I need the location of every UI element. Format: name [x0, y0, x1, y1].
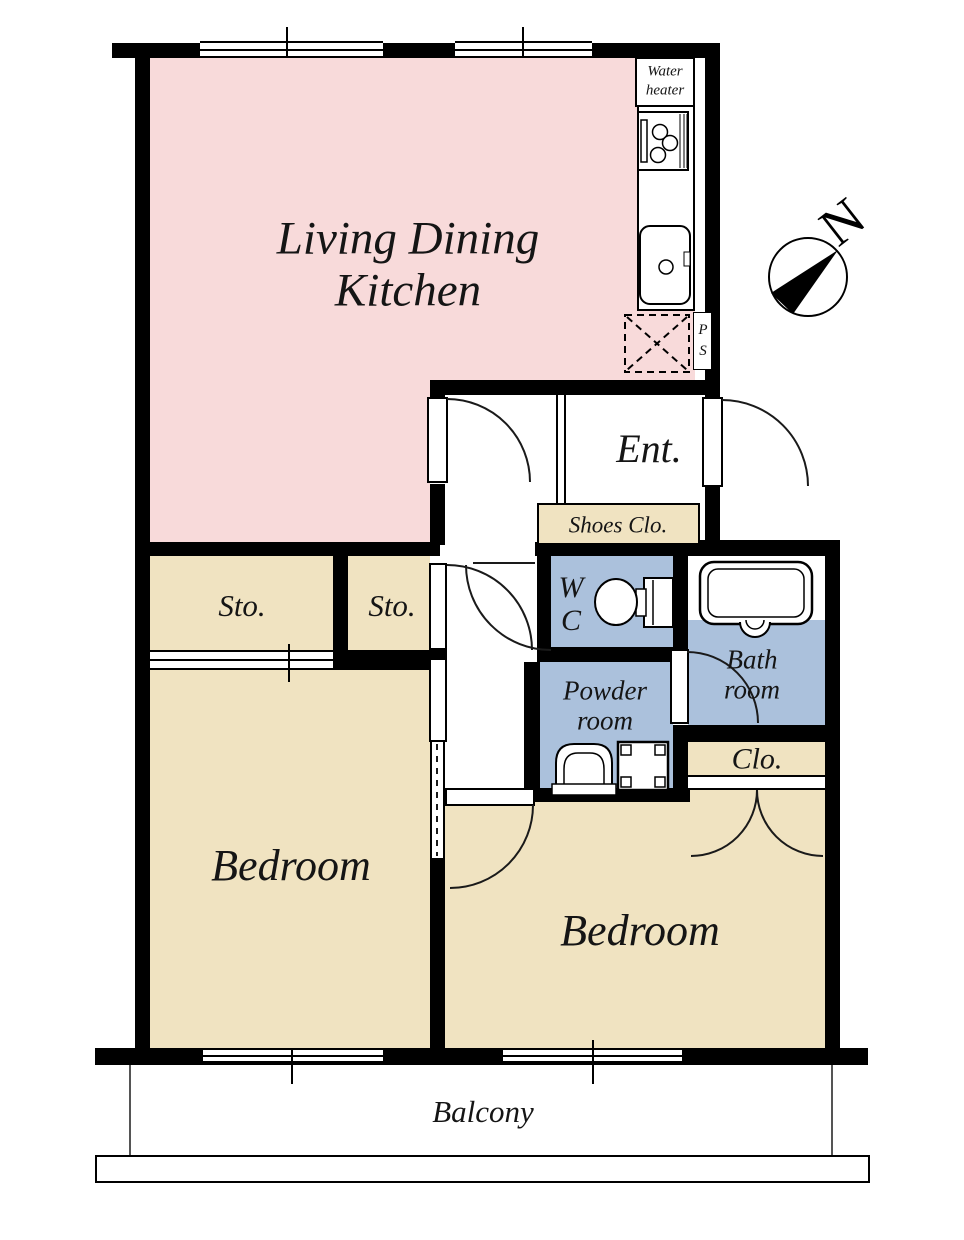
bedroom1-door-pocket	[430, 742, 445, 858]
room-label-closet: Clo.	[732, 743, 783, 776]
entrance-step-line	[556, 395, 566, 503]
room-label-entrance: Ent.	[616, 427, 682, 471]
bedroom1-sliding-door	[429, 658, 447, 742]
wall-ldk-hall-horiz	[430, 380, 720, 395]
balcony-left-edge	[129, 1065, 131, 1157]
bath-label-line1: Bath	[724, 645, 780, 675]
pipe-space-line1: P	[698, 320, 707, 341]
water-heater-line2: heater	[646, 81, 684, 100]
room-label-bedroom-left: Bedroom	[211, 842, 371, 890]
pipe-space-line2: S	[698, 341, 707, 362]
balcony-right-edge	[831, 1065, 833, 1157]
room-label-wc: W C	[559, 571, 584, 637]
room-label-shoes-closet: Shoes Clo.	[569, 512, 667, 537]
water-heater-line1: Water	[646, 62, 684, 81]
window-tick	[592, 1040, 594, 1084]
balcony-railing	[95, 1155, 870, 1183]
window-bottom-left	[203, 1048, 383, 1063]
wall-wc-bottom	[537, 647, 688, 662]
ldk-label-line2: Kitchen	[277, 265, 539, 317]
fixture-label-water-heater: Water heater	[646, 62, 684, 100]
room-label-ldk: Living Dining Kitchen	[277, 213, 539, 316]
room-label-balcony: Balcony	[432, 1095, 534, 1129]
window-tick	[286, 27, 288, 58]
bath-door-opening	[673, 650, 688, 725]
window-tick	[291, 1048, 293, 1084]
room-label-storage1: Sto.	[218, 589, 265, 623]
storage2-door-leaf	[429, 563, 447, 650]
floor-plan: N Living Dining Kitchen Ent. Shoes Clo. …	[0, 0, 964, 1240]
closet-door-track	[688, 775, 825, 790]
wall-hall-powder	[524, 662, 540, 792]
wall-bath-bottom	[674, 725, 825, 742]
wall-closet-left	[674, 742, 688, 802]
wall-storage-divider	[333, 555, 348, 650]
window-mullion	[200, 49, 383, 51]
wall-right-lower	[825, 545, 840, 1065]
room-label-powder: Powder room	[563, 676, 647, 735]
wall-wc-left	[537, 555, 551, 650]
wc-label-line2: C	[559, 604, 584, 637]
ldk-floor-fridge-area	[637, 310, 695, 380]
storage1-sliding-track	[150, 650, 333, 670]
room-label-storage2: Sto.	[368, 589, 415, 623]
compass-icon: N	[769, 186, 876, 316]
wall-mid-left	[135, 542, 440, 556]
wc-label-line1: W	[559, 571, 584, 604]
window-tick	[522, 27, 524, 58]
fixture-label-pipe-space: P S	[698, 320, 707, 362]
compass-north-label: N	[808, 186, 876, 257]
powder-label-line2: room	[563, 706, 647, 736]
storage2-door-arc	[447, 565, 532, 650]
track-line	[150, 659, 333, 661]
ldk-label-line1: Living Dining	[277, 213, 539, 265]
kitchen-counter	[637, 105, 695, 311]
front-door-opening	[705, 397, 720, 487]
ldk-hall-door-arc	[447, 399, 530, 482]
window-mullion	[203, 1055, 383, 1057]
powder-label-line1: Powder	[563, 676, 647, 706]
wall-entry-connector	[700, 540, 840, 556]
bath-label-line2: room	[724, 675, 780, 705]
room-label-bathroom: Bath room	[724, 645, 780, 704]
track-tick	[288, 644, 290, 682]
window-top-left	[200, 41, 383, 58]
ldk-hall-door-opening	[430, 397, 445, 484]
room-label-bedroom-right: Bedroom	[560, 907, 720, 955]
bathroom-tub-area	[688, 556, 825, 620]
front-door-arc	[722, 400, 808, 486]
bedroom2-door-opening	[446, 788, 535, 802]
